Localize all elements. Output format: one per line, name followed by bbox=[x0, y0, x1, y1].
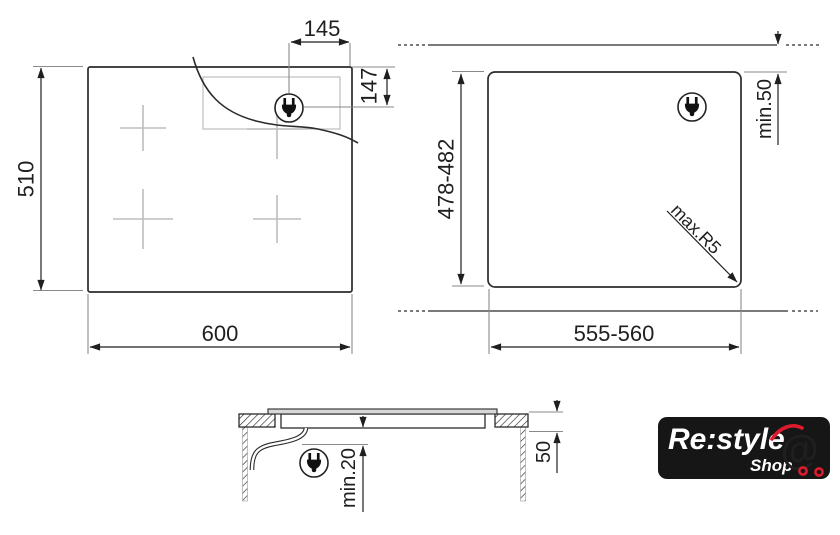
dimension-lines-left bbox=[41, 42, 387, 347]
worktop-section-right bbox=[495, 414, 528, 427]
cart-wheel-right bbox=[815, 468, 822, 475]
cabinet-side-right bbox=[521, 427, 526, 501]
power-plug-icon bbox=[300, 449, 328, 477]
worktop-cutout-view: 478-482 min.50 max.R5 555-560 bbox=[398, 31, 820, 354]
shopping-cart-icon: @ bbox=[766, 419, 830, 479]
hob-top-view: 145 147 510 600 bbox=[14, 16, 396, 354]
inner-detail-rect bbox=[203, 77, 340, 129]
side-section-view: min.20 50 bbox=[239, 400, 563, 512]
dim-hob-height: 510 bbox=[14, 161, 39, 198]
dim-cutout-depth: 478-482 bbox=[434, 139, 459, 220]
glass-top-section bbox=[268, 409, 497, 414]
hob-body-section bbox=[281, 414, 485, 428]
dim-plug-offset-right: 145 bbox=[304, 16, 341, 41]
worktop-section-left bbox=[239, 414, 275, 427]
dim-rear-clearance: min.50 bbox=[754, 79, 776, 139]
hob-outline bbox=[88, 67, 352, 292]
burner-cross-marks bbox=[113, 99, 307, 249]
dim-cutout-width: 555-560 bbox=[574, 321, 655, 346]
power-plug-icon bbox=[678, 93, 706, 121]
cabinet-side-left bbox=[243, 427, 248, 501]
power-cable-inner bbox=[252, 428, 306, 470]
dim-corner-radius: max.R5 bbox=[667, 200, 725, 258]
worktop-break-curve bbox=[193, 57, 358, 143]
installation-diagram: 145 147 510 600 bbox=[0, 0, 840, 535]
dim-plug-offset-top: 147 bbox=[357, 68, 382, 105]
dim-worktop-thickness: 50 bbox=[533, 441, 555, 463]
restyle-shop-logo: Re:style Shop @ bbox=[658, 417, 830, 479]
power-plug-icon bbox=[275, 94, 303, 122]
dim-hob-width: 600 bbox=[202, 321, 239, 346]
dim-bottom-clearance: min.20 bbox=[338, 448, 360, 508]
dimension-lines-cutout bbox=[461, 31, 778, 347]
